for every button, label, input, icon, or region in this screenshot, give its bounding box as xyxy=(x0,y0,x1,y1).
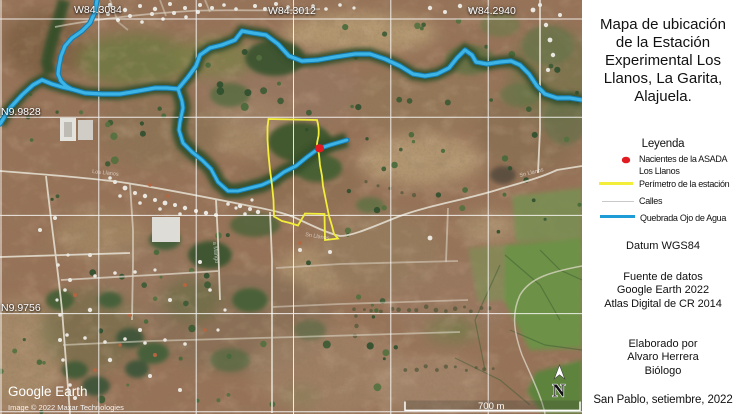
svg-text:700 m: 700 m xyxy=(478,401,504,412)
svg-text:N: N xyxy=(553,381,566,401)
svg-text:W84.2940: W84.2940 xyxy=(468,5,516,17)
svg-text:Google Earth: Google Earth xyxy=(8,384,88,399)
svg-text:N9.9828: N9.9828 xyxy=(1,106,41,118)
svg-text:Image © 2022 Maxar Technologie: Image © 2022 Maxar Technologies xyxy=(8,403,124,412)
svg-text:W84.3084: W84.3084 xyxy=(74,4,122,16)
svg-text:W84.3012: W84.3012 xyxy=(268,5,316,17)
svg-text:N9.9756: N9.9756 xyxy=(1,302,41,314)
